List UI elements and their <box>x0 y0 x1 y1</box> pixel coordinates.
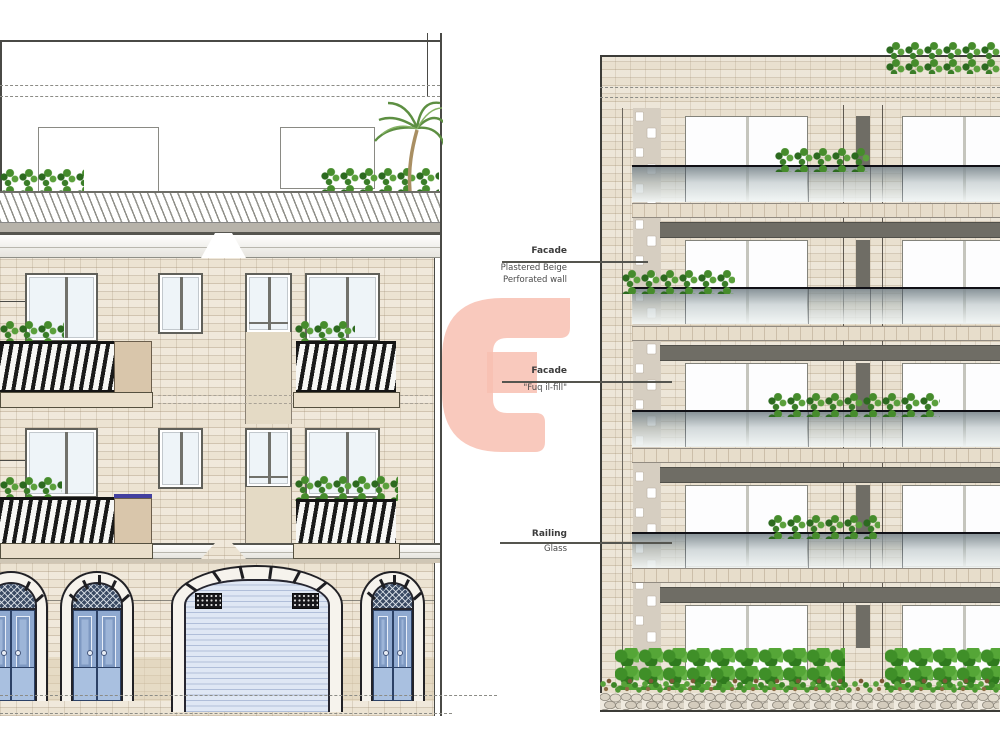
balcony-railing <box>0 497 114 546</box>
roof-band <box>0 223 440 233</box>
right-elevation <box>600 30 1000 720</box>
balcony-side-panel <box>114 341 152 393</box>
floor-slab <box>660 345 1000 361</box>
rail-planter <box>768 515 880 539</box>
rail-planter <box>886 42 1000 74</box>
ground-line <box>0 713 452 714</box>
stair-window <box>245 273 292 334</box>
ground-line <box>600 710 1000 712</box>
doorway <box>360 571 425 701</box>
stair-window <box>245 428 292 488</box>
roof-top-line <box>0 40 440 42</box>
doorway <box>0 571 48 701</box>
vent-grille <box>292 593 319 609</box>
sill-band <box>632 448 1000 463</box>
sill-band <box>632 203 1000 218</box>
floor-slab <box>660 222 1000 238</box>
vent-grille <box>195 593 222 609</box>
ground-line <box>0 695 497 696</box>
balcony-side-panel <box>114 498 152 546</box>
balcony-railing <box>296 341 396 393</box>
watermark-logo <box>428 295 576 455</box>
sill-band <box>632 568 1000 583</box>
stone-strip <box>600 693 1000 710</box>
roof-dashed-line <box>0 85 440 86</box>
balcony-railing <box>296 499 396 546</box>
rail-planter <box>775 148 870 172</box>
rail-planter <box>768 393 940 417</box>
floor-slab <box>660 587 1000 603</box>
palm-tree <box>370 96 443 194</box>
stair-bay <box>245 487 292 544</box>
balcony-slab <box>0 392 153 408</box>
left-elevation <box>0 0 443 750</box>
rail-planter <box>622 270 735 294</box>
balcony-slab <box>293 392 400 408</box>
window <box>158 273 203 334</box>
ground-plants <box>600 678 1000 694</box>
balcony-planter <box>295 476 398 501</box>
floor-slab <box>660 467 1000 483</box>
sill-band <box>632 326 1000 341</box>
balcony-railing <box>0 341 114 393</box>
window <box>158 428 203 489</box>
garage-arch <box>171 565 343 712</box>
doorway <box>60 571 134 701</box>
cornice <box>0 233 215 258</box>
cornice <box>232 233 440 258</box>
roof-railing <box>0 191 440 223</box>
balcony-slab <box>293 543 400 559</box>
stair-bay <box>245 332 292 424</box>
elevation-sheet: Facade Plastered Beige Perforated wall F… <box>0 0 1000 750</box>
balcony-slab <box>0 543 153 559</box>
